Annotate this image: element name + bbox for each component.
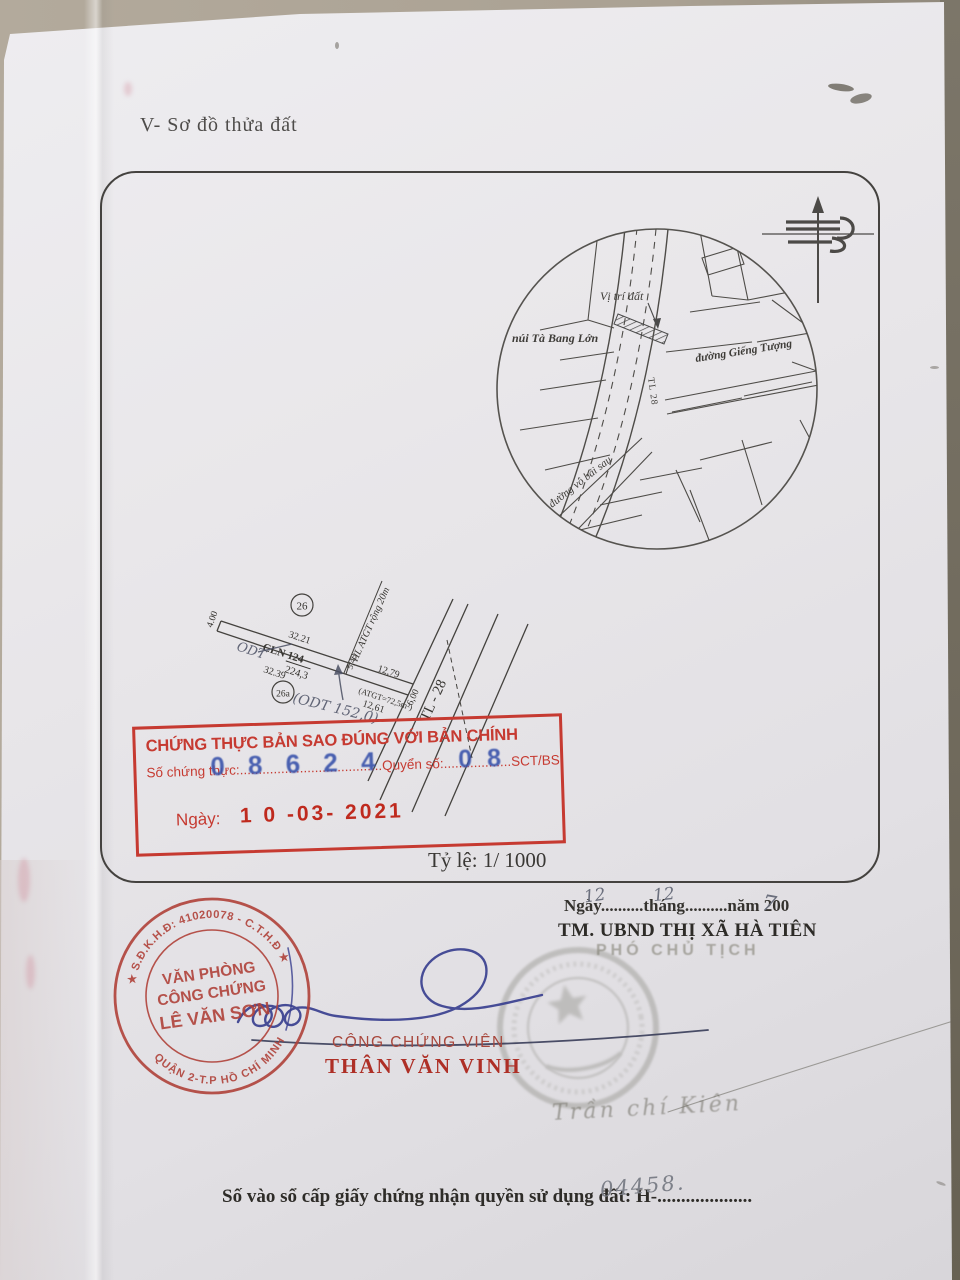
authority-line: TM. UBND THỊ XÃ HÀ TIÊN [558,920,817,942]
ink-smudge [930,366,939,369]
pink-stain [124,82,132,96]
registry-label: Số vào sổ cấp giấy chứng nhận quyền sử d… [222,1186,657,1207]
pink-stain [26,955,35,989]
cert-suffix: SCT/BS [511,752,560,769]
year-label: năm 200 [727,896,789,915]
cert-number-blue: 0 8 6 2 4 [210,746,384,782]
date-dots-2: .......... [685,896,728,915]
handwritten-month: 12 [652,884,676,906]
date-dots-1: .......... [601,896,644,915]
pink-stain [18,858,30,902]
map-scale-label: Tỷ lệ: 1/ 1000 [428,848,546,873]
notary-title: CÔNG CHỨNG VIÊN [332,1034,505,1052]
notary-name: THÂN VĂN VINH [325,1054,522,1079]
certification-stamp: CHỨNG THỰC BẢN SAO ĐÚNG VỚI BẢN CHÍNH Số… [132,713,566,856]
cert-field-quyen: Quyển số: [382,756,444,773]
scanned-document-photo: V- Sơ đồ thửa đất [0,0,960,1280]
position-title-faded: PHÓ CHỦ TỊCH [596,942,760,960]
handwritten-day: 12 [583,885,607,908]
cert-date-value: 1 0 -03- 2021 [240,799,405,828]
cert-date-label: Ngày: [176,809,221,830]
paper-shadow [0,860,90,1280]
cert-book-blue: 0 8 [458,744,506,774]
ink-smudge [335,42,339,49]
section-title: V- Sơ đồ thửa đất [140,114,298,137]
